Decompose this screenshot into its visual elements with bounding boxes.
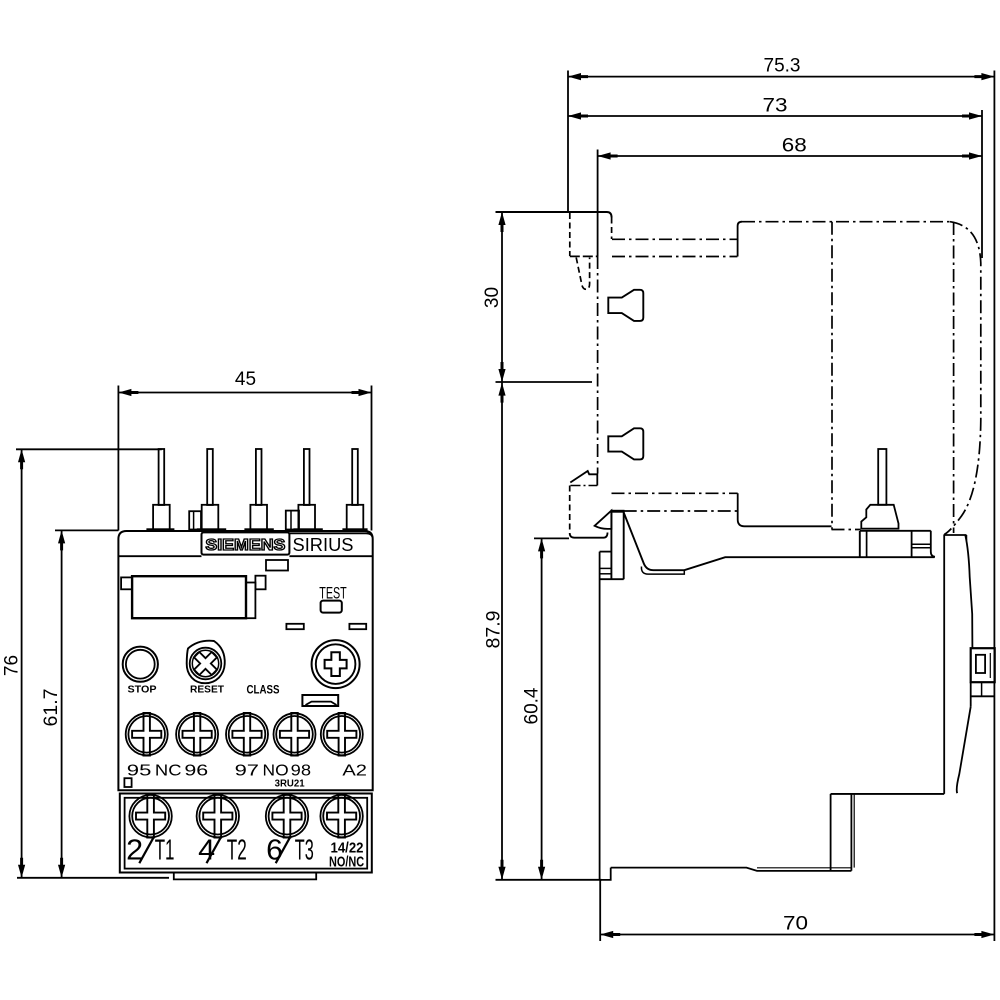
svg-text:NC: NC	[155, 762, 182, 779]
svg-text:30: 30	[482, 287, 503, 308]
svg-text:73: 73	[763, 96, 788, 117]
svg-text:97: 97	[235, 762, 260, 779]
svg-text:A2: A2	[342, 762, 367, 779]
svg-text:3RU21: 3RU21	[275, 779, 305, 790]
svg-text:RESET: RESET	[190, 684, 225, 696]
svg-text:96: 96	[184, 762, 208, 779]
svg-text:6: 6	[266, 834, 283, 866]
svg-text:2: 2	[126, 834, 143, 866]
svg-text:61.7: 61.7	[41, 689, 62, 727]
svg-text:T1: T1	[155, 834, 175, 866]
svg-text:68: 68	[782, 136, 807, 157]
svg-text:95: 95	[127, 762, 152, 779]
svg-text:70: 70	[783, 913, 808, 934]
svg-text:75.3: 75.3	[764, 56, 801, 77]
svg-text:SIEMENS: SIEMENS	[205, 537, 285, 554]
svg-text:98: 98	[291, 762, 312, 779]
svg-text:45: 45	[235, 369, 256, 390]
svg-text:NO: NO	[263, 762, 289, 779]
svg-text:60.4: 60.4	[522, 687, 543, 724]
svg-text:4: 4	[198, 834, 215, 866]
svg-text:CLASS: CLASS	[247, 684, 280, 696]
svg-text:T3: T3	[295, 834, 314, 866]
svg-text:STOP: STOP	[128, 684, 157, 696]
svg-text:TEST: TEST	[319, 583, 347, 602]
svg-text:76: 76	[2, 655, 23, 676]
svg-text:SIRIUS: SIRIUS	[293, 534, 354, 555]
svg-text:NO/NC: NO/NC	[329, 853, 364, 870]
svg-text:T2: T2	[227, 834, 247, 866]
